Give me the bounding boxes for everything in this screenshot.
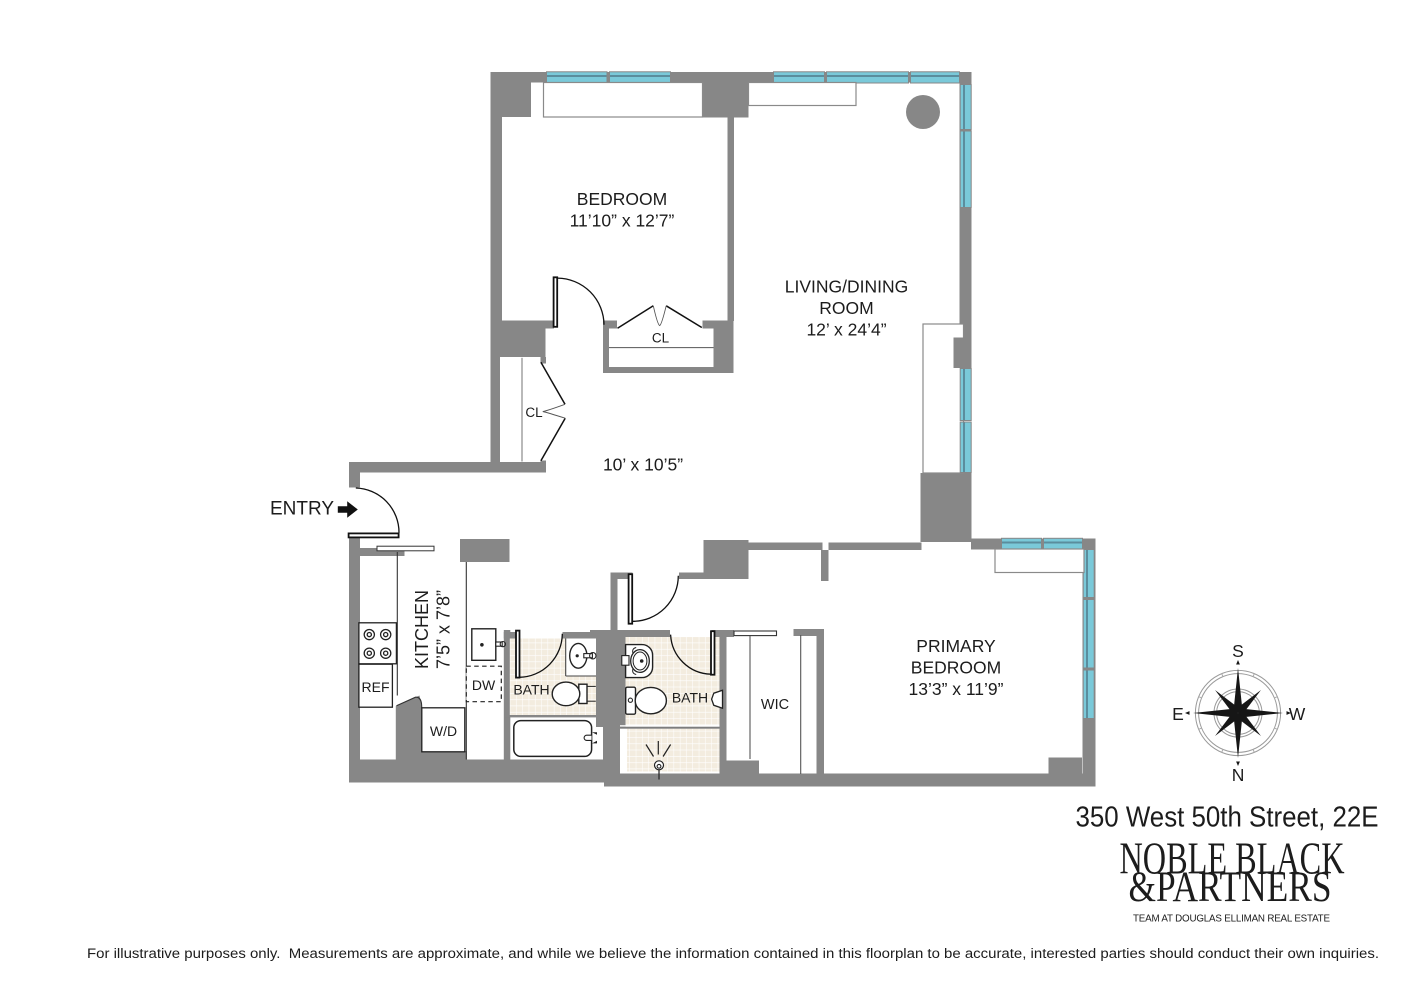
svg-text:TEAM AT DOUGLAS ELLIMAN REAL E: TEAM AT DOUGLAS ELLIMAN REAL ESTATE xyxy=(1133,914,1330,925)
svg-text:LIVING/DINING: LIVING/DINING xyxy=(785,277,909,297)
svg-text:REF: REF xyxy=(362,679,390,695)
svg-text:ENTRY: ENTRY xyxy=(270,499,334,520)
svg-text:11’10” x 12’7”: 11’10” x 12’7” xyxy=(570,211,675,231)
svg-text:PRIMARY: PRIMARY xyxy=(916,636,996,656)
svg-text:13’3” x 11’9”: 13’3” x 11’9” xyxy=(908,679,1003,699)
svg-text:BATH: BATH xyxy=(672,690,708,706)
svg-text:W: W xyxy=(1289,704,1306,724)
svg-text:WIC: WIC xyxy=(761,697,789,713)
svg-text:350 West 50th Street, 22E: 350 West 50th Street, 22E xyxy=(1076,802,1379,834)
svg-text:S: S xyxy=(1232,641,1244,661)
svg-text:N: N xyxy=(1232,765,1245,785)
svg-text:DW: DW xyxy=(472,677,496,693)
svg-text:7’5” x 7’8”: 7’5” x 7’8” xyxy=(434,590,454,669)
svg-text:KITCHEN: KITCHEN xyxy=(412,590,432,669)
svg-text:&PARTNERS: &PARTNERS xyxy=(1129,864,1332,911)
svg-text:CL: CL xyxy=(525,405,543,420)
svg-text:E: E xyxy=(1172,704,1184,724)
svg-text:12’ x 24’4”: 12’ x 24’4” xyxy=(806,320,886,340)
svg-text:W/D: W/D xyxy=(430,723,457,739)
svg-text:ROOM: ROOM xyxy=(819,298,873,318)
svg-text:CL: CL xyxy=(652,331,670,346)
svg-text:10’ x 10’5”: 10’ x 10’5” xyxy=(603,455,683,475)
svg-text:For illustrative purposes only: For illustrative purposes only. Measurem… xyxy=(87,946,1379,962)
svg-text:BEDROOM: BEDROOM xyxy=(577,189,667,209)
svg-text:BEDROOM: BEDROOM xyxy=(911,658,1001,678)
svg-text:BATH: BATH xyxy=(513,682,549,698)
